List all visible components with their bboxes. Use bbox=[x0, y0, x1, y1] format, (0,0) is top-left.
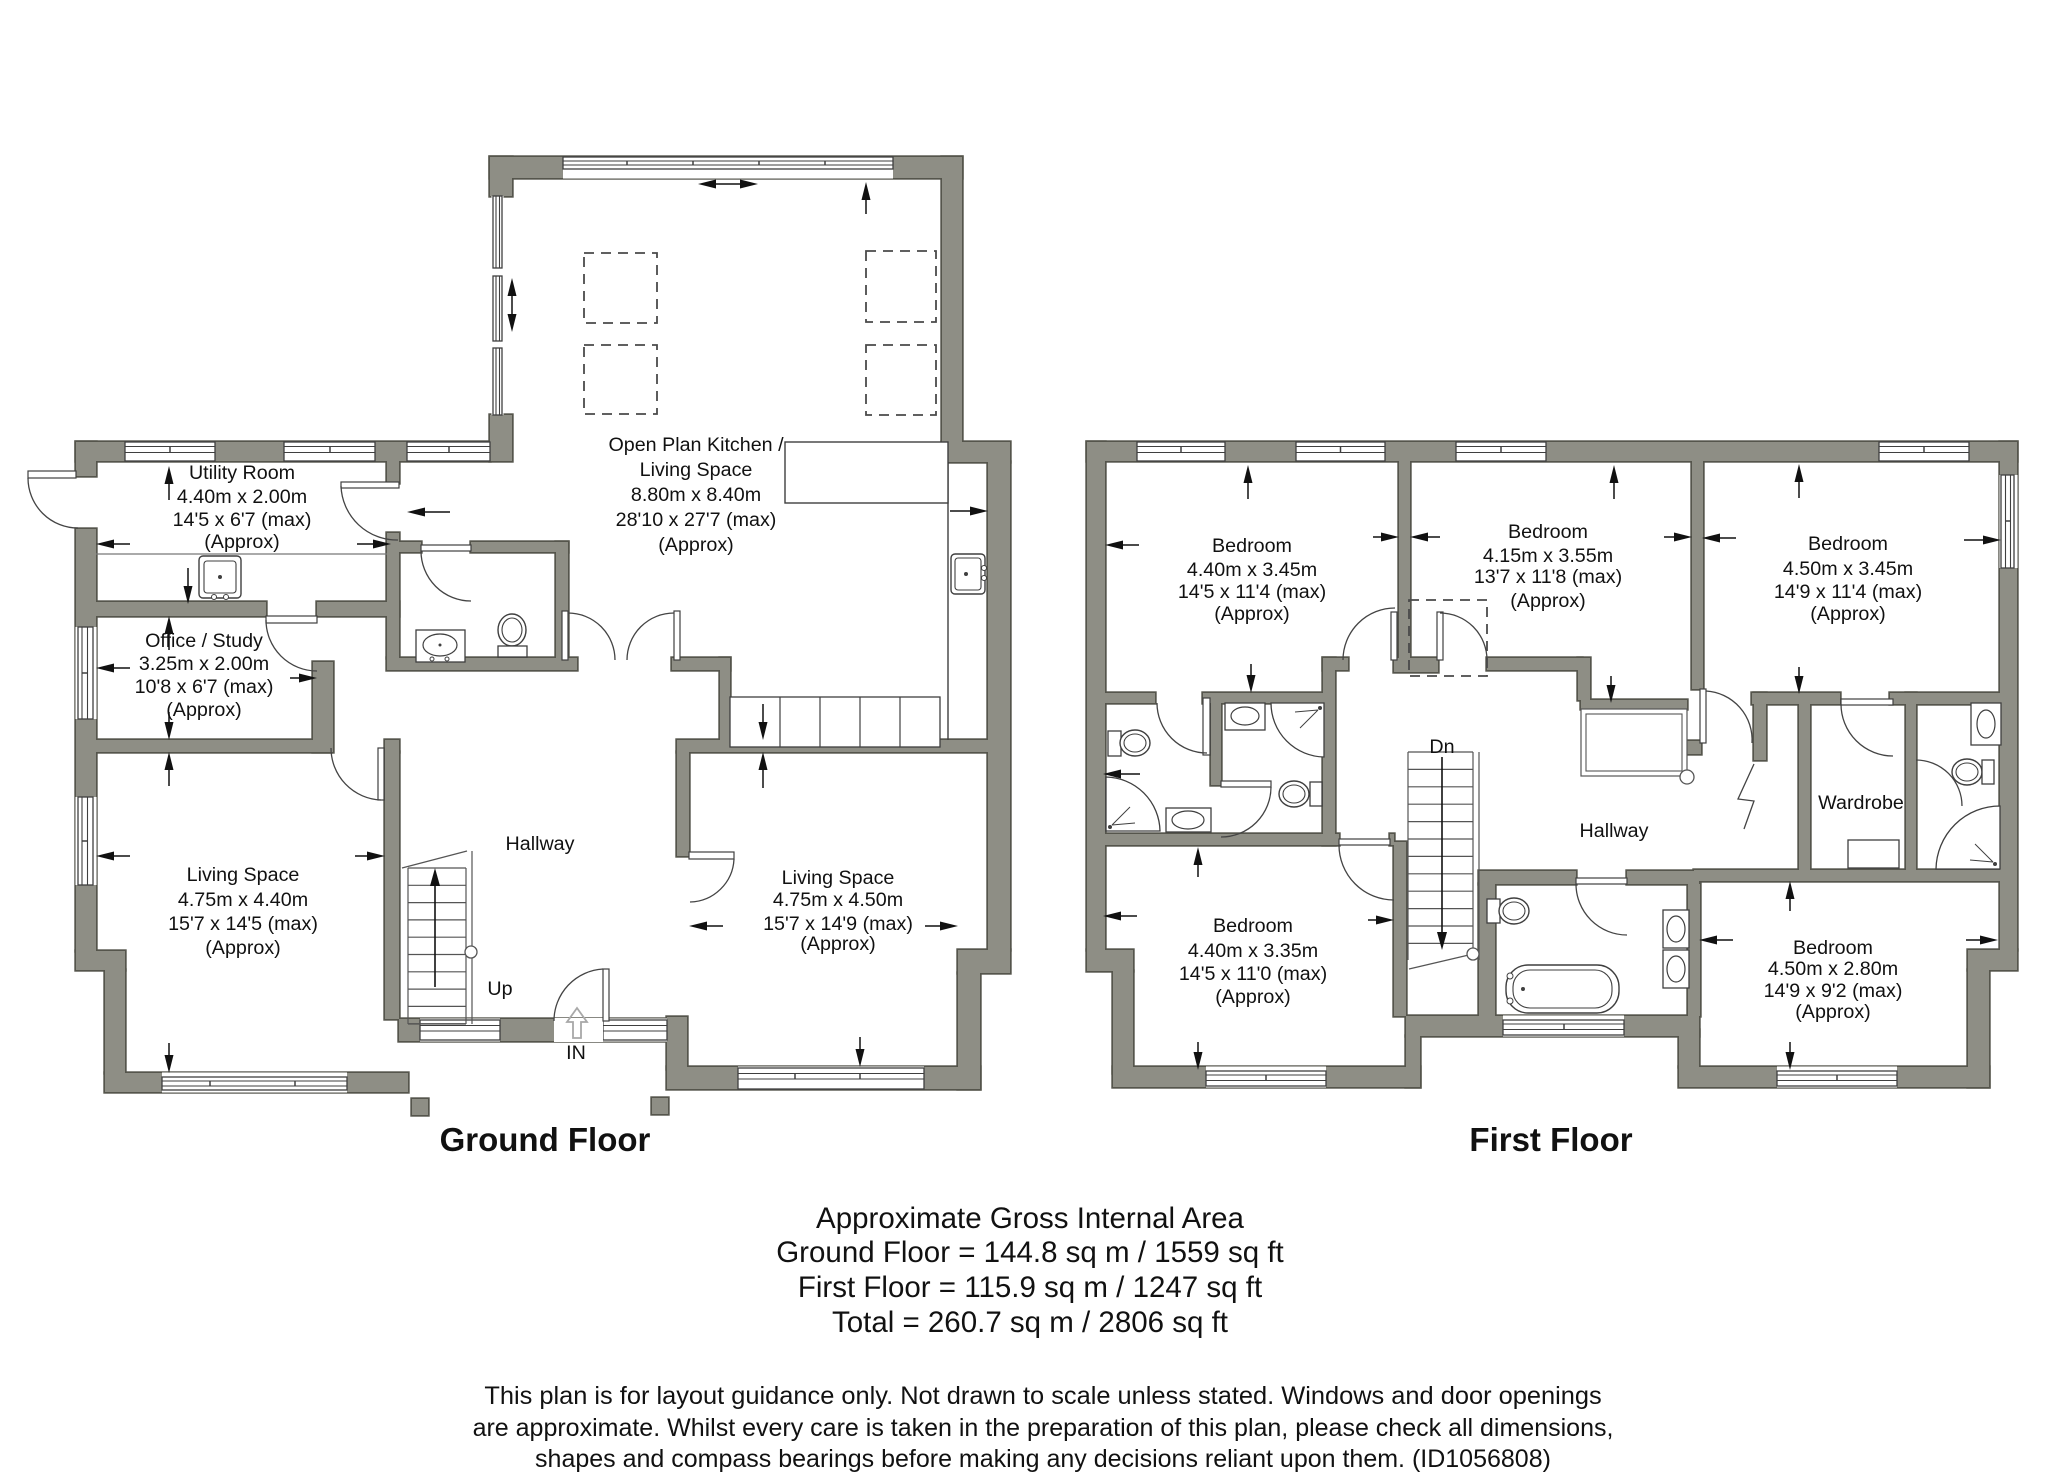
svg-text:Living Space: Living Space bbox=[187, 864, 300, 886]
svg-text:Ground Floor: Ground Floor bbox=[440, 1121, 651, 1158]
svg-text:Bedroom: Bedroom bbox=[1212, 535, 1292, 557]
svg-text:Bedroom: Bedroom bbox=[1808, 533, 1888, 555]
svg-text:This plan is for layout guidan: This plan is for layout guidance only. N… bbox=[484, 1382, 1601, 1410]
svg-text:15'7 x 14'9 (max): 15'7 x 14'9 (max) bbox=[763, 913, 913, 935]
svg-text:Living Space: Living Space bbox=[782, 867, 895, 889]
svg-text:Bedroom: Bedroom bbox=[1793, 937, 1873, 959]
svg-text:14'5 x 11'4 (max): 14'5 x 11'4 (max) bbox=[1178, 581, 1326, 603]
svg-text:(Approx): (Approx) bbox=[1510, 590, 1586, 612]
svg-text:(Approx): (Approx) bbox=[1795, 1001, 1871, 1023]
svg-text:Open Plan Kitchen /: Open Plan Kitchen / bbox=[608, 434, 784, 456]
svg-text:(Approx): (Approx) bbox=[800, 933, 876, 955]
svg-text:First Floor: First Floor bbox=[1469, 1121, 1632, 1158]
svg-text:Up: Up bbox=[487, 978, 512, 1000]
svg-text:4.40m x 3.35m: 4.40m x 3.35m bbox=[1188, 940, 1318, 962]
svg-text:4.75m x 4.40m: 4.75m x 4.40m bbox=[178, 889, 308, 911]
svg-text:IN: IN bbox=[566, 1042, 586, 1064]
svg-text:(Approx): (Approx) bbox=[1214, 603, 1290, 625]
svg-text:(Approx): (Approx) bbox=[166, 699, 242, 721]
svg-text:13'7 x 11'8 (max): 13'7 x 11'8 (max) bbox=[1474, 566, 1622, 588]
svg-text:(Approx): (Approx) bbox=[205, 937, 281, 959]
svg-text:Total = 260.7 sq m / 2806 sq f: Total = 260.7 sq m / 2806 sq ft bbox=[832, 1306, 1228, 1339]
svg-text:14'5 x 6'7 (max): 14'5 x 6'7 (max) bbox=[173, 509, 312, 531]
svg-text:Bedroom: Bedroom bbox=[1508, 521, 1588, 543]
svg-text:are approximate. Whilst every: are approximate. Whilst every care is ta… bbox=[473, 1414, 1614, 1442]
svg-text:Hallway: Hallway bbox=[506, 833, 575, 855]
svg-text:Bedroom: Bedroom bbox=[1213, 915, 1293, 937]
svg-text:4.40m x 2.00m: 4.40m x 2.00m bbox=[177, 486, 307, 508]
svg-text:shapes and compass bearings be: shapes and compass bearings before makin… bbox=[535, 1445, 1551, 1473]
svg-text:(Approx): (Approx) bbox=[1810, 603, 1886, 625]
svg-text:4.50m x 3.45m: 4.50m x 3.45m bbox=[1783, 558, 1913, 580]
svg-text:8.80m x 8.40m: 8.80m x 8.40m bbox=[631, 484, 761, 506]
svg-text:Utility Room: Utility Room bbox=[189, 462, 295, 484]
svg-text:14'5 x 11'0 (max): 14'5 x 11'0 (max) bbox=[1179, 963, 1327, 985]
svg-text:4.75m x 4.50m: 4.75m x 4.50m bbox=[773, 889, 903, 911]
svg-text:15'7 x 14'5 (max): 15'7 x 14'5 (max) bbox=[168, 913, 318, 935]
svg-text:14'9 x 11'4 (max): 14'9 x 11'4 (max) bbox=[1774, 581, 1922, 603]
svg-text:Approximate Gross Internal Are: Approximate Gross Internal Area bbox=[816, 1202, 1245, 1235]
svg-text:Ground Floor = 144.8 sq m / 15: Ground Floor = 144.8 sq m / 1559 sq ft bbox=[776, 1236, 1284, 1269]
svg-text:Living Space: Living Space bbox=[640, 459, 753, 481]
svg-text:Dn: Dn bbox=[1429, 736, 1454, 758]
svg-text:Office / Study: Office / Study bbox=[145, 630, 263, 652]
svg-text:3.25m x 2.00m: 3.25m x 2.00m bbox=[139, 653, 269, 675]
svg-text:28'10 x 27'7 (max): 28'10 x 27'7 (max) bbox=[616, 509, 777, 531]
svg-text:(Approx): (Approx) bbox=[658, 534, 734, 556]
svg-text:10'8 x 6'7 (max): 10'8 x 6'7 (max) bbox=[135, 676, 274, 698]
svg-text:14'9 x 9'2 (max): 14'9 x 9'2 (max) bbox=[1764, 980, 1903, 1002]
svg-text:4.40m x 3.45m: 4.40m x 3.45m bbox=[1187, 559, 1317, 581]
svg-text:Wardrobe: Wardrobe bbox=[1818, 792, 1904, 814]
svg-text:(Approx): (Approx) bbox=[204, 531, 280, 553]
svg-text:(Approx): (Approx) bbox=[1215, 986, 1291, 1008]
svg-text:4.50m x 2.80m: 4.50m x 2.80m bbox=[1768, 958, 1898, 980]
svg-text:Hallway: Hallway bbox=[1580, 820, 1649, 842]
svg-text:4.15m x 3.55m: 4.15m x 3.55m bbox=[1483, 545, 1613, 567]
svg-text:First Floor = 115.9 sq m / 124: First Floor = 115.9 sq m / 1247 sq ft bbox=[798, 1271, 1262, 1304]
